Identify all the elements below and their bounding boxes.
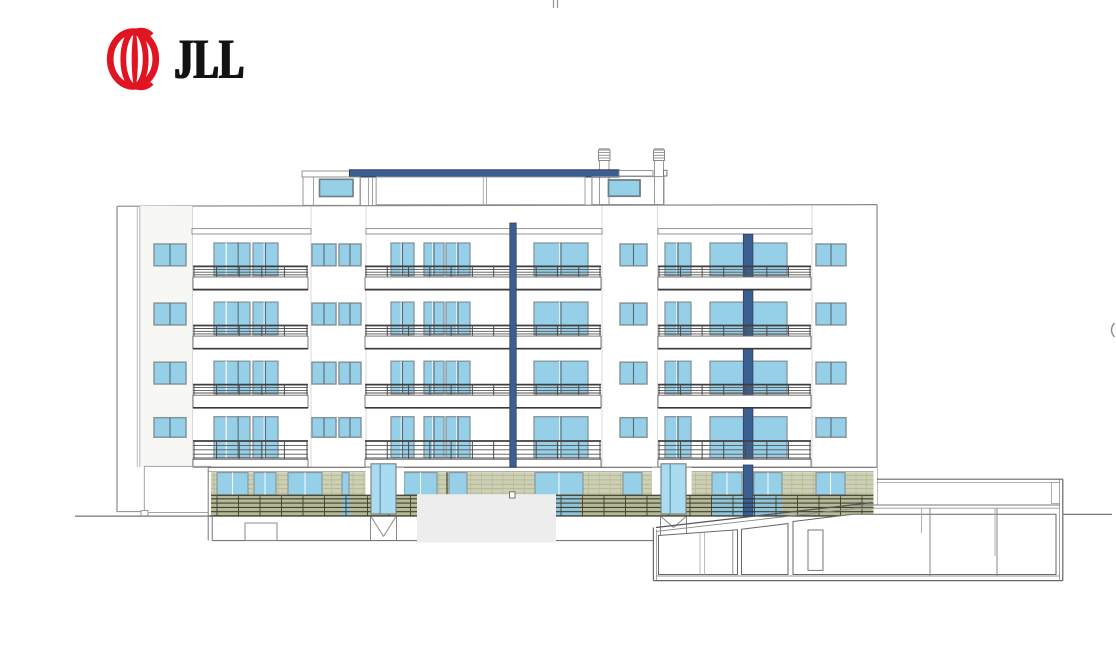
svg-text:JLL: JLL bbox=[176, 28, 246, 91]
